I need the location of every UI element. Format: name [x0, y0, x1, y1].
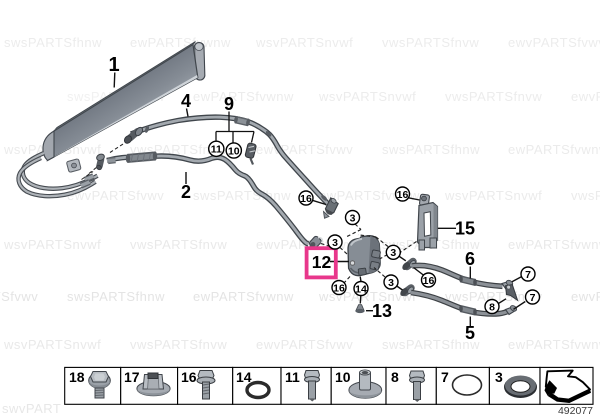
svg-text:16: 16 — [300, 193, 312, 205]
svg-text:14: 14 — [236, 369, 252, 385]
svg-text:ewvPARTSfvwv: ewvPARTSfvwv — [508, 35, 600, 50]
svg-text:8: 8 — [391, 369, 399, 385]
svg-text:vwsPARTSfnvw: vwsPARTSfnvw — [382, 35, 479, 50]
svg-text:ewvPARTSfvwv: ewvPARTSfvwv — [256, 142, 353, 157]
svg-text:16: 16 — [333, 282, 345, 294]
svg-text:4: 4 — [181, 91, 191, 111]
svg-text:wsvPARTSnvwf: wsvPARTSnvwf — [3, 337, 101, 352]
svg-text:492077: 492077 — [558, 405, 593, 417]
svg-text:3: 3 — [350, 212, 356, 224]
svg-text:ewvPARTSfvwv: ewvPARTSfvwv — [256, 337, 353, 352]
svg-text:5: 5 — [465, 323, 475, 343]
svg-text:10: 10 — [228, 145, 240, 157]
svg-text:vwsPARTSfnvw: vwsPARTSfnvw — [571, 188, 600, 203]
svg-text:wsvPARTSnvwf: wsvPARTSnvwf — [318, 89, 416, 104]
svg-text:2: 2 — [181, 182, 191, 202]
svg-text:13: 13 — [372, 301, 392, 321]
svg-text:swsPARTSfhnw: swsPARTSfhnw — [382, 142, 480, 157]
svg-text:16: 16 — [397, 189, 409, 201]
svg-text:3: 3 — [495, 369, 503, 385]
svg-text:ewPARTSfvwnw: ewPARTSfvwnw — [508, 237, 600, 252]
svg-text:vwsPARTSfnvw: vwsPARTSfnvw — [445, 89, 542, 104]
svg-text:12: 12 — [312, 252, 332, 272]
svg-text:wsvPARTSnvwf: wsvPARTSnvwf — [3, 237, 101, 252]
svg-text:7: 7 — [530, 292, 536, 304]
svg-text:3: 3 — [332, 237, 338, 249]
svg-text:9: 9 — [224, 94, 234, 114]
svg-text:swsPARTSfhnw: swsPARTSfhnw — [67, 289, 165, 304]
svg-text:ewvPARTSfvwv: ewvPARTSfvwv — [571, 289, 600, 304]
svg-text:16: 16 — [423, 275, 435, 287]
svg-text:3: 3 — [388, 277, 394, 289]
svg-text:17: 17 — [124, 369, 140, 385]
svg-text:8: 8 — [489, 301, 495, 313]
svg-text:7: 7 — [525, 269, 531, 281]
svg-text:3: 3 — [390, 247, 396, 259]
svg-text:18: 18 — [69, 369, 85, 385]
svg-text:wsvPARTSnvwf: wsvPARTSnvwf — [444, 188, 542, 203]
svg-text:ewPARTSfvwnw: ewPARTSfvwnw — [130, 35, 231, 50]
svg-text:swsPARTSfhnw: swsPARTSfhnw — [193, 188, 291, 203]
svg-text:ewvPARTSfvwv: ewvPARTSfvwv — [571, 89, 600, 104]
svg-text:vwsPARTSfnvw: vwsPARTSfnvw — [130, 337, 227, 352]
svg-text:vwsPARTSfnvw: vwsPARTSfnvw — [130, 237, 227, 252]
svg-text:16: 16 — [181, 369, 197, 385]
svg-text:15: 15 — [455, 219, 475, 239]
svg-text:14: 14 — [355, 283, 367, 295]
svg-text:ewPARTSfvwnw: ewPARTSfvwnw — [508, 337, 600, 352]
svg-text:ewPARTSfvwnw: ewPARTSfvwnw — [508, 142, 600, 157]
svg-text:wsvPARTSnvwf: wsvPARTSnvwf — [255, 35, 353, 50]
svg-text:swvPART: swvPART — [2, 401, 61, 416]
svg-text:6: 6 — [465, 249, 475, 269]
svg-text:ewvPARTSfvwv: ewvPARTSfvwv — [0, 289, 38, 304]
svg-text:11: 11 — [285, 369, 300, 385]
svg-text:ewPARTSfvwnw: ewPARTSfvwnw — [193, 89, 294, 104]
svg-text:ewPARTSfvwnw: ewPARTSfvwnw — [193, 289, 294, 304]
svg-text:swsPARTSfhnw: swsPARTSfhnw — [4, 35, 102, 50]
svg-text:10: 10 — [335, 369, 351, 385]
svg-text:1: 1 — [108, 54, 119, 76]
svg-text:11: 11 — [211, 144, 222, 156]
svg-text:7: 7 — [441, 369, 449, 385]
